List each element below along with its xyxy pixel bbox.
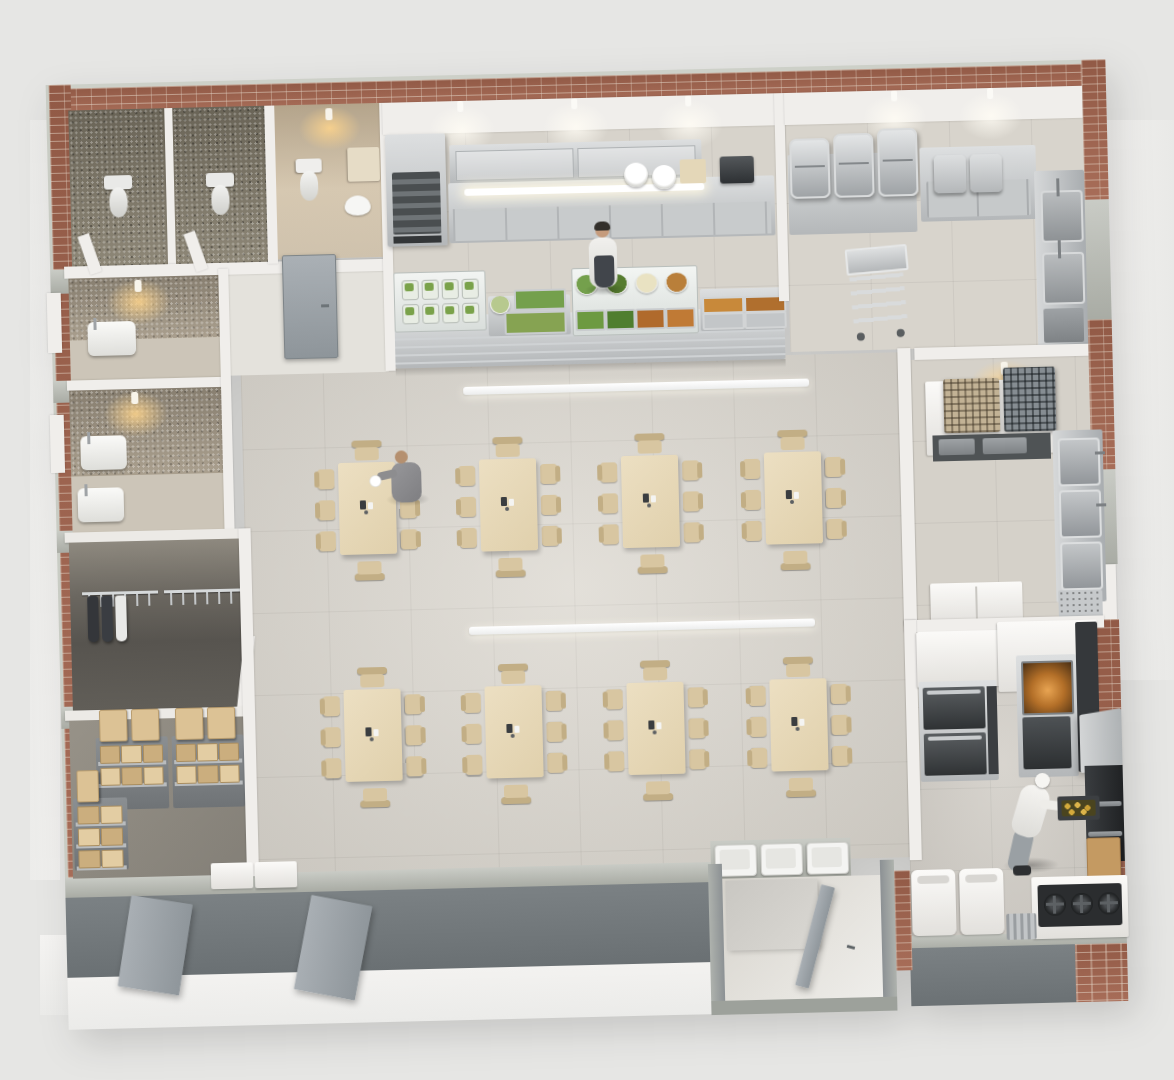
chair-right-back: [846, 717, 851, 733]
chair-left-back: [746, 719, 751, 735]
chair-left: [464, 724, 481, 744]
chair-seat-bottom: [783, 551, 807, 565]
chair-right-back: [420, 696, 425, 712]
chair-seat-top: [360, 674, 384, 688]
return-tray: [806, 842, 849, 875]
condiment-white: [794, 492, 799, 499]
condiment-small: [364, 510, 368, 514]
condiment-white: [656, 722, 661, 729]
chair-left: [606, 720, 623, 740]
chair-seat-bottom: [357, 561, 381, 575]
chair-seat-bottom: [646, 781, 670, 795]
chair-right-back: [846, 686, 851, 702]
chair-right-back: [561, 724, 566, 740]
chair-right-back: [561, 693, 566, 709]
chair-seat-top: [496, 444, 520, 458]
condiment-dark: [643, 493, 649, 502]
chair-left-back: [597, 465, 602, 481]
chair-left: [749, 717, 766, 737]
chair-seat-bottom: [363, 788, 387, 802]
condiment-dark: [648, 720, 654, 729]
chair-right-back: [699, 524, 704, 540]
chair-left-back: [320, 698, 325, 714]
chair-right-back: [556, 497, 561, 513]
chair-right-back: [698, 493, 703, 509]
chair-seat-top: [501, 671, 525, 685]
chair-seat-bottom: [640, 554, 664, 568]
building: [46, 59, 1129, 1030]
diner-body: [391, 462, 422, 503]
chair-right-back: [841, 490, 846, 506]
chair-right-back: [697, 462, 702, 478]
chair-right-back: [421, 758, 426, 774]
chair-left: [750, 748, 767, 768]
condiment-white: [651, 495, 656, 502]
chair-seat-bottom: [498, 558, 522, 572]
chair-left-back: [462, 757, 467, 773]
chair-left: [465, 755, 482, 775]
chair-left: [601, 493, 618, 513]
chair-seat-top: [786, 664, 810, 678]
chair-left-back: [604, 754, 609, 770]
chair-right-back: [703, 689, 708, 705]
return-tray-inner: [720, 849, 750, 870]
condiment-small: [653, 730, 657, 734]
return-tray-inner: [765, 848, 795, 869]
chair-right-back: [562, 755, 567, 771]
condiment-small: [790, 500, 794, 504]
chair-left-back: [314, 472, 319, 488]
chair-left: [317, 469, 334, 489]
chair-left: [744, 490, 761, 510]
render-canvas: [0, 0, 1174, 1080]
chair-seat-top: [780, 437, 804, 451]
chair-left: [602, 524, 619, 544]
chair-left: [458, 466, 475, 486]
chair-right-back: [847, 748, 852, 764]
chair-right-back: [841, 521, 846, 537]
chair-left: [323, 727, 340, 747]
chair-left-back: [603, 692, 608, 708]
chair-left-back: [746, 688, 751, 704]
chair-left: [324, 758, 341, 778]
chair-left: [318, 500, 335, 520]
chair-left: [606, 689, 623, 709]
chair-left: [460, 528, 477, 548]
condiment-white: [373, 729, 378, 736]
chair-seat-top: [643, 667, 667, 681]
chair-left: [600, 462, 617, 482]
chair-left-back: [456, 499, 461, 515]
chair-right-back: [420, 727, 425, 743]
return-tray: [760, 843, 803, 876]
chair-left-back: [742, 523, 747, 539]
chair-left-back: [747, 750, 752, 766]
condiment-dark: [365, 727, 371, 736]
chair-left-back: [321, 760, 326, 776]
condiment-white: [368, 502, 373, 509]
chair-right-back: [704, 751, 709, 767]
condiment-dark: [786, 490, 792, 499]
condiment-white: [514, 726, 519, 733]
chair-left-back: [599, 527, 604, 543]
condiment-white: [509, 499, 514, 506]
condiment-dark: [506, 724, 512, 733]
chair-left-back: [457, 530, 462, 546]
chair-left: [607, 751, 624, 771]
chair-left-back: [740, 461, 745, 477]
dining-tables-layer: [46, 59, 1129, 1030]
chair-left-back: [741, 492, 746, 508]
chair-seat-top: [637, 440, 661, 454]
condiment-small: [505, 507, 509, 511]
chair-left: [744, 521, 761, 541]
chair-left: [323, 696, 340, 716]
vestibule-inner-wall: [725, 878, 819, 950]
chair-right-back: [703, 720, 708, 736]
chair-seat-bottom: [504, 785, 528, 799]
chair-left: [743, 459, 760, 479]
condiment-dark: [360, 500, 366, 509]
chair-left: [459, 497, 476, 517]
chair-left: [464, 693, 481, 713]
condiment-dark: [791, 717, 797, 726]
chair-left-back: [603, 723, 608, 739]
condiment-small: [647, 503, 651, 507]
chair-left-back: [320, 729, 325, 745]
chair-left-back: [461, 695, 466, 711]
chair-left-back: [461, 726, 466, 742]
chair-left: [749, 686, 766, 706]
chair-right-back: [840, 459, 845, 475]
tray-return: [714, 842, 849, 877]
condiment-small: [511, 734, 515, 738]
chair-seat-bottom: [789, 778, 813, 792]
chair-left: [319, 531, 336, 551]
chair-left-back: [316, 534, 321, 550]
chair-left-back: [315, 503, 320, 519]
condiment-small: [796, 727, 800, 731]
condiment-dark: [501, 497, 507, 506]
return-tray-inner: [811, 847, 841, 868]
vestibule-right-brick: [894, 870, 912, 970]
condiment-small: [370, 737, 374, 741]
chair-right-back: [557, 528, 562, 544]
chair-left-back: [598, 496, 603, 512]
condiment-white: [799, 719, 804, 726]
chair-right-back: [555, 466, 560, 482]
chair-seat-top: [355, 447, 379, 461]
chair-left-back: [455, 468, 460, 484]
chair-right-back: [416, 531, 421, 547]
